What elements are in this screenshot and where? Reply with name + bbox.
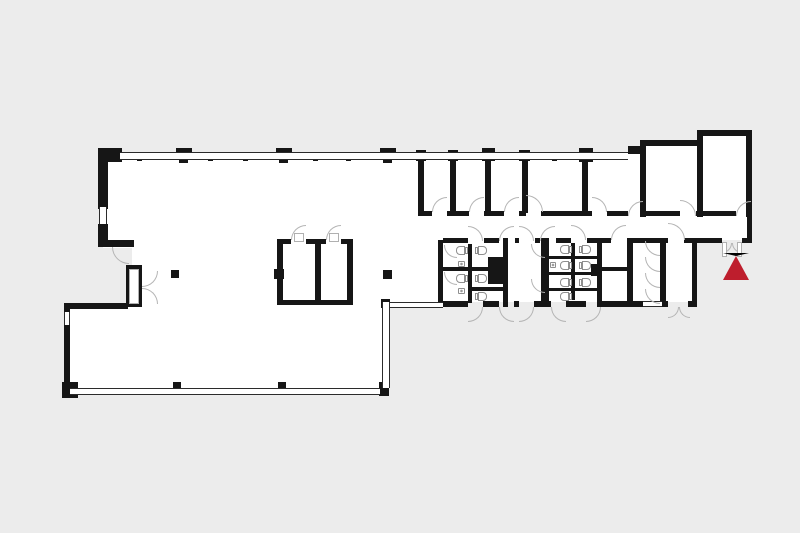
wall	[315, 239, 321, 305]
wall	[591, 264, 599, 276]
wall	[274, 269, 284, 279]
toilet-fixture	[579, 246, 582, 253]
wall	[443, 267, 472, 271]
window	[64, 312, 70, 325]
wall	[549, 256, 597, 259]
wall	[306, 239, 326, 244]
wall	[98, 240, 134, 247]
wall	[171, 270, 179, 278]
door-leaf	[294, 233, 304, 242]
sink-fixture	[550, 262, 556, 268]
entrance-marker	[723, 253, 749, 280]
window	[99, 207, 107, 224]
toilet-fixture	[560, 292, 569, 301]
toilet-fixture	[582, 278, 591, 287]
wall	[484, 238, 499, 243]
window	[390, 302, 443, 308]
toilet-fixture	[560, 278, 569, 287]
wall	[519, 211, 526, 216]
wall	[660, 238, 666, 307]
wall	[627, 238, 633, 307]
wall	[640, 140, 702, 146]
toilet-fixture	[475, 247, 478, 254]
floor-area	[103, 153, 418, 248]
wall	[484, 211, 504, 216]
toilet-fixture	[560, 261, 569, 270]
wall	[566, 301, 586, 307]
toilet-fixture	[465, 247, 468, 254]
toilet-fixture	[579, 262, 582, 269]
wall	[98, 148, 108, 209]
floor-area	[703, 133, 746, 213]
wall	[607, 211, 628, 216]
wall	[697, 130, 703, 217]
wall	[347, 239, 353, 305]
toilet-fixture	[478, 274, 487, 283]
wall	[383, 270, 392, 279]
wall	[503, 238, 508, 307]
toilet-fixture	[475, 293, 478, 300]
wall	[643, 211, 680, 216]
floor-area	[70, 306, 385, 390]
toilet-fixture	[560, 245, 569, 254]
door-swing-arc	[586, 307, 601, 322]
wall	[582, 155, 588, 213]
wall	[483, 301, 499, 307]
wall	[443, 238, 468, 243]
wall	[556, 238, 571, 243]
wall	[468, 244, 472, 303]
wall	[450, 155, 456, 213]
wall	[549, 272, 597, 275]
door-swing-arc	[679, 307, 690, 318]
wall	[488, 257, 503, 284]
door-swing-arc	[519, 307, 534, 322]
toilet-fixture	[582, 245, 591, 254]
toilet-fixture	[569, 246, 572, 253]
floor-plan-canvas	[0, 0, 800, 533]
wall	[696, 211, 736, 216]
wall	[541, 211, 592, 216]
wall	[485, 155, 491, 213]
wall	[742, 238, 752, 243]
toilet-fixture	[569, 262, 572, 269]
wall	[418, 155, 424, 213]
door-swing-arc	[499, 307, 514, 322]
door-swing-arc	[551, 307, 566, 322]
toilet-fixture	[569, 293, 572, 300]
wall	[341, 239, 353, 244]
window	[382, 302, 390, 388]
wall	[549, 288, 597, 291]
wall	[277, 239, 291, 244]
wall	[438, 240, 443, 303]
door-swing-arc	[668, 307, 679, 318]
sink-fixture	[458, 288, 465, 294]
door-leaf	[329, 233, 339, 242]
wall	[601, 267, 627, 271]
toilet-fixture	[579, 279, 582, 286]
wall	[472, 287, 503, 291]
toilet-fixture	[478, 246, 487, 255]
toilet-fixture	[478, 292, 487, 301]
wall	[277, 300, 353, 305]
toilet-fixture	[475, 275, 478, 282]
wall	[418, 211, 432, 216]
window	[70, 388, 380, 395]
wall	[64, 303, 128, 309]
wall	[692, 238, 697, 307]
toilet-fixture	[456, 274, 465, 283]
toilet-fixture	[465, 275, 468, 282]
wall	[601, 301, 643, 307]
door-leaf	[129, 269, 139, 304]
wall	[697, 130, 752, 136]
wall	[447, 211, 469, 216]
sink-fixture	[458, 261, 465, 267]
wall	[534, 301, 551, 307]
wall	[697, 238, 722, 243]
door-swing-arc	[468, 307, 483, 322]
toilet-fixture	[456, 246, 465, 255]
window	[120, 152, 628, 160]
toilet-fixture	[569, 279, 572, 286]
toilet-fixture	[582, 261, 591, 270]
door-swing-arc	[112, 247, 129, 264]
